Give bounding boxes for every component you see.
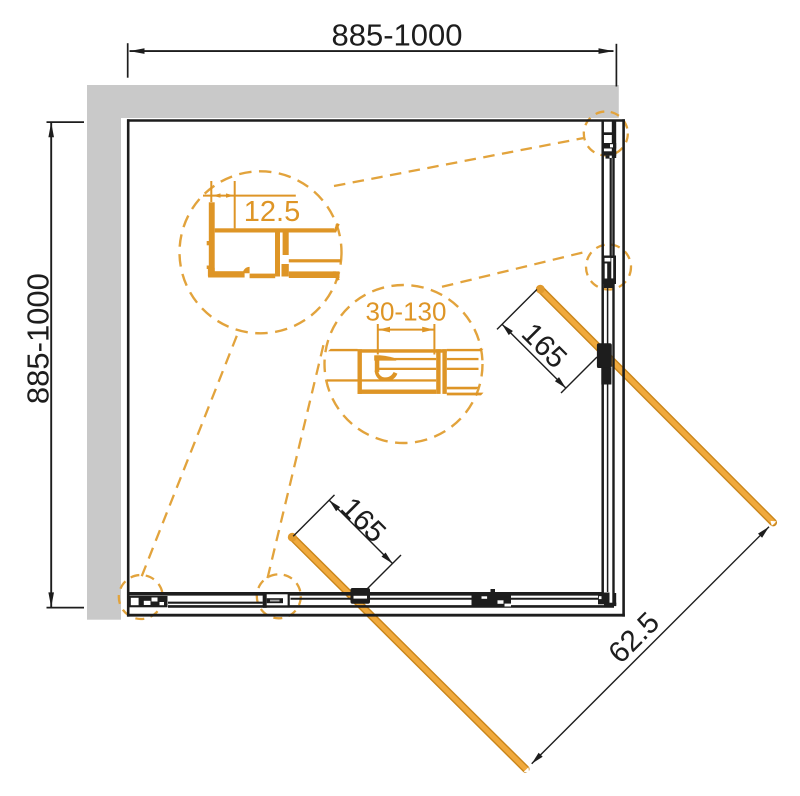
- svg-text:885-1000: 885-1000: [331, 18, 462, 53]
- svg-text:30-130: 30-130: [366, 297, 447, 327]
- svg-text:885-1000: 885-1000: [20, 273, 55, 404]
- svg-text:12.5: 12.5: [244, 196, 300, 228]
